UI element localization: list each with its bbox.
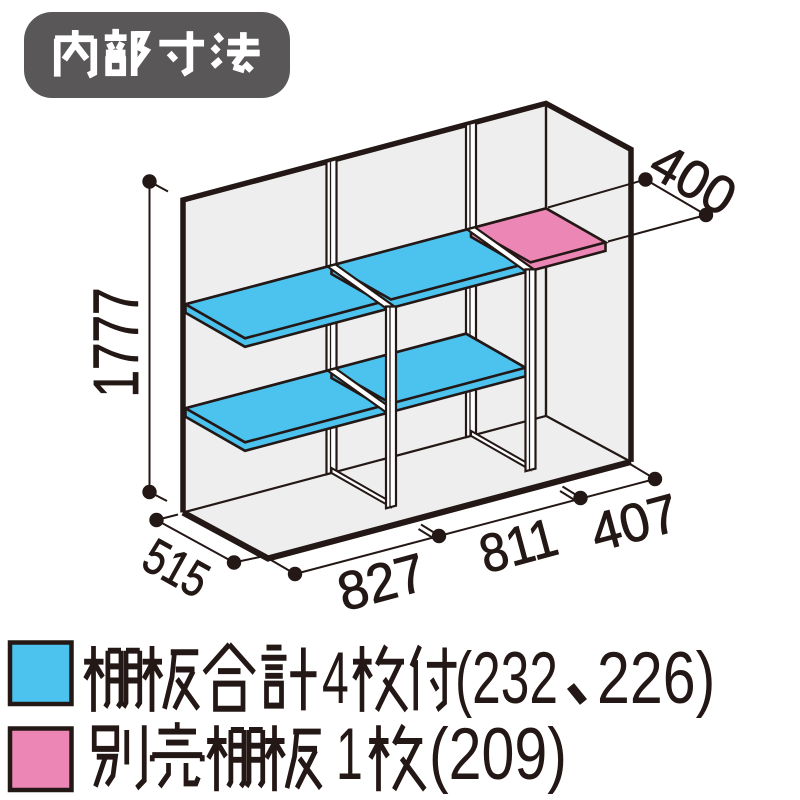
svg-text:(209): (209) [429, 714, 567, 795]
svg-text:4: 4 [322, 638, 349, 719]
svg-text:226): 226) [597, 638, 715, 719]
svg-text:(232: (232 [455, 638, 558, 719]
svg-text:1777: 1777 [80, 288, 152, 398]
svg-text:1: 1 [336, 714, 363, 795]
